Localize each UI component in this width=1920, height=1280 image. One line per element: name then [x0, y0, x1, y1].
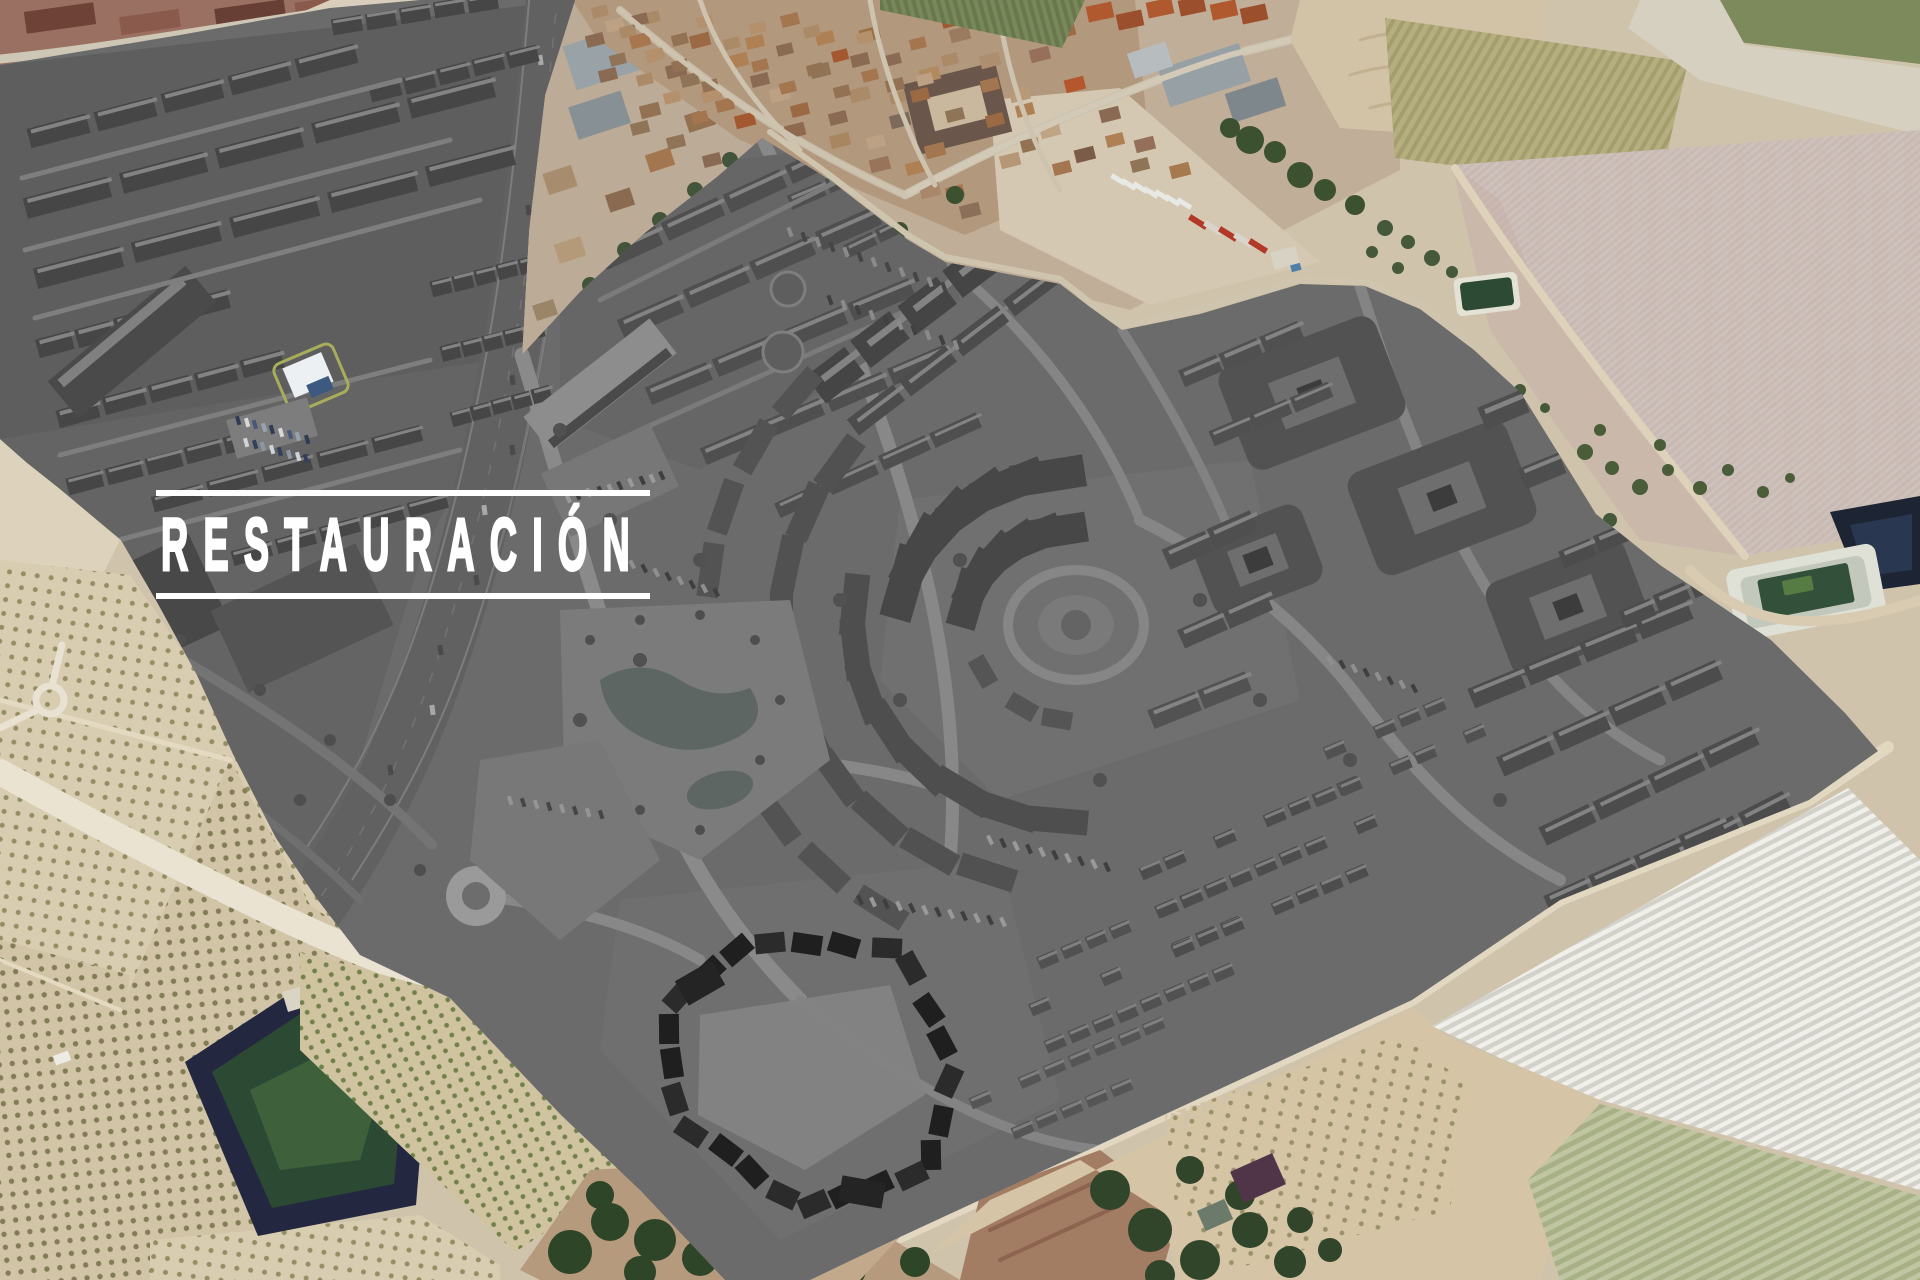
- svg-text:RESTAURACIÓN: RESTAURACIÓN: [161, 503, 645, 586]
